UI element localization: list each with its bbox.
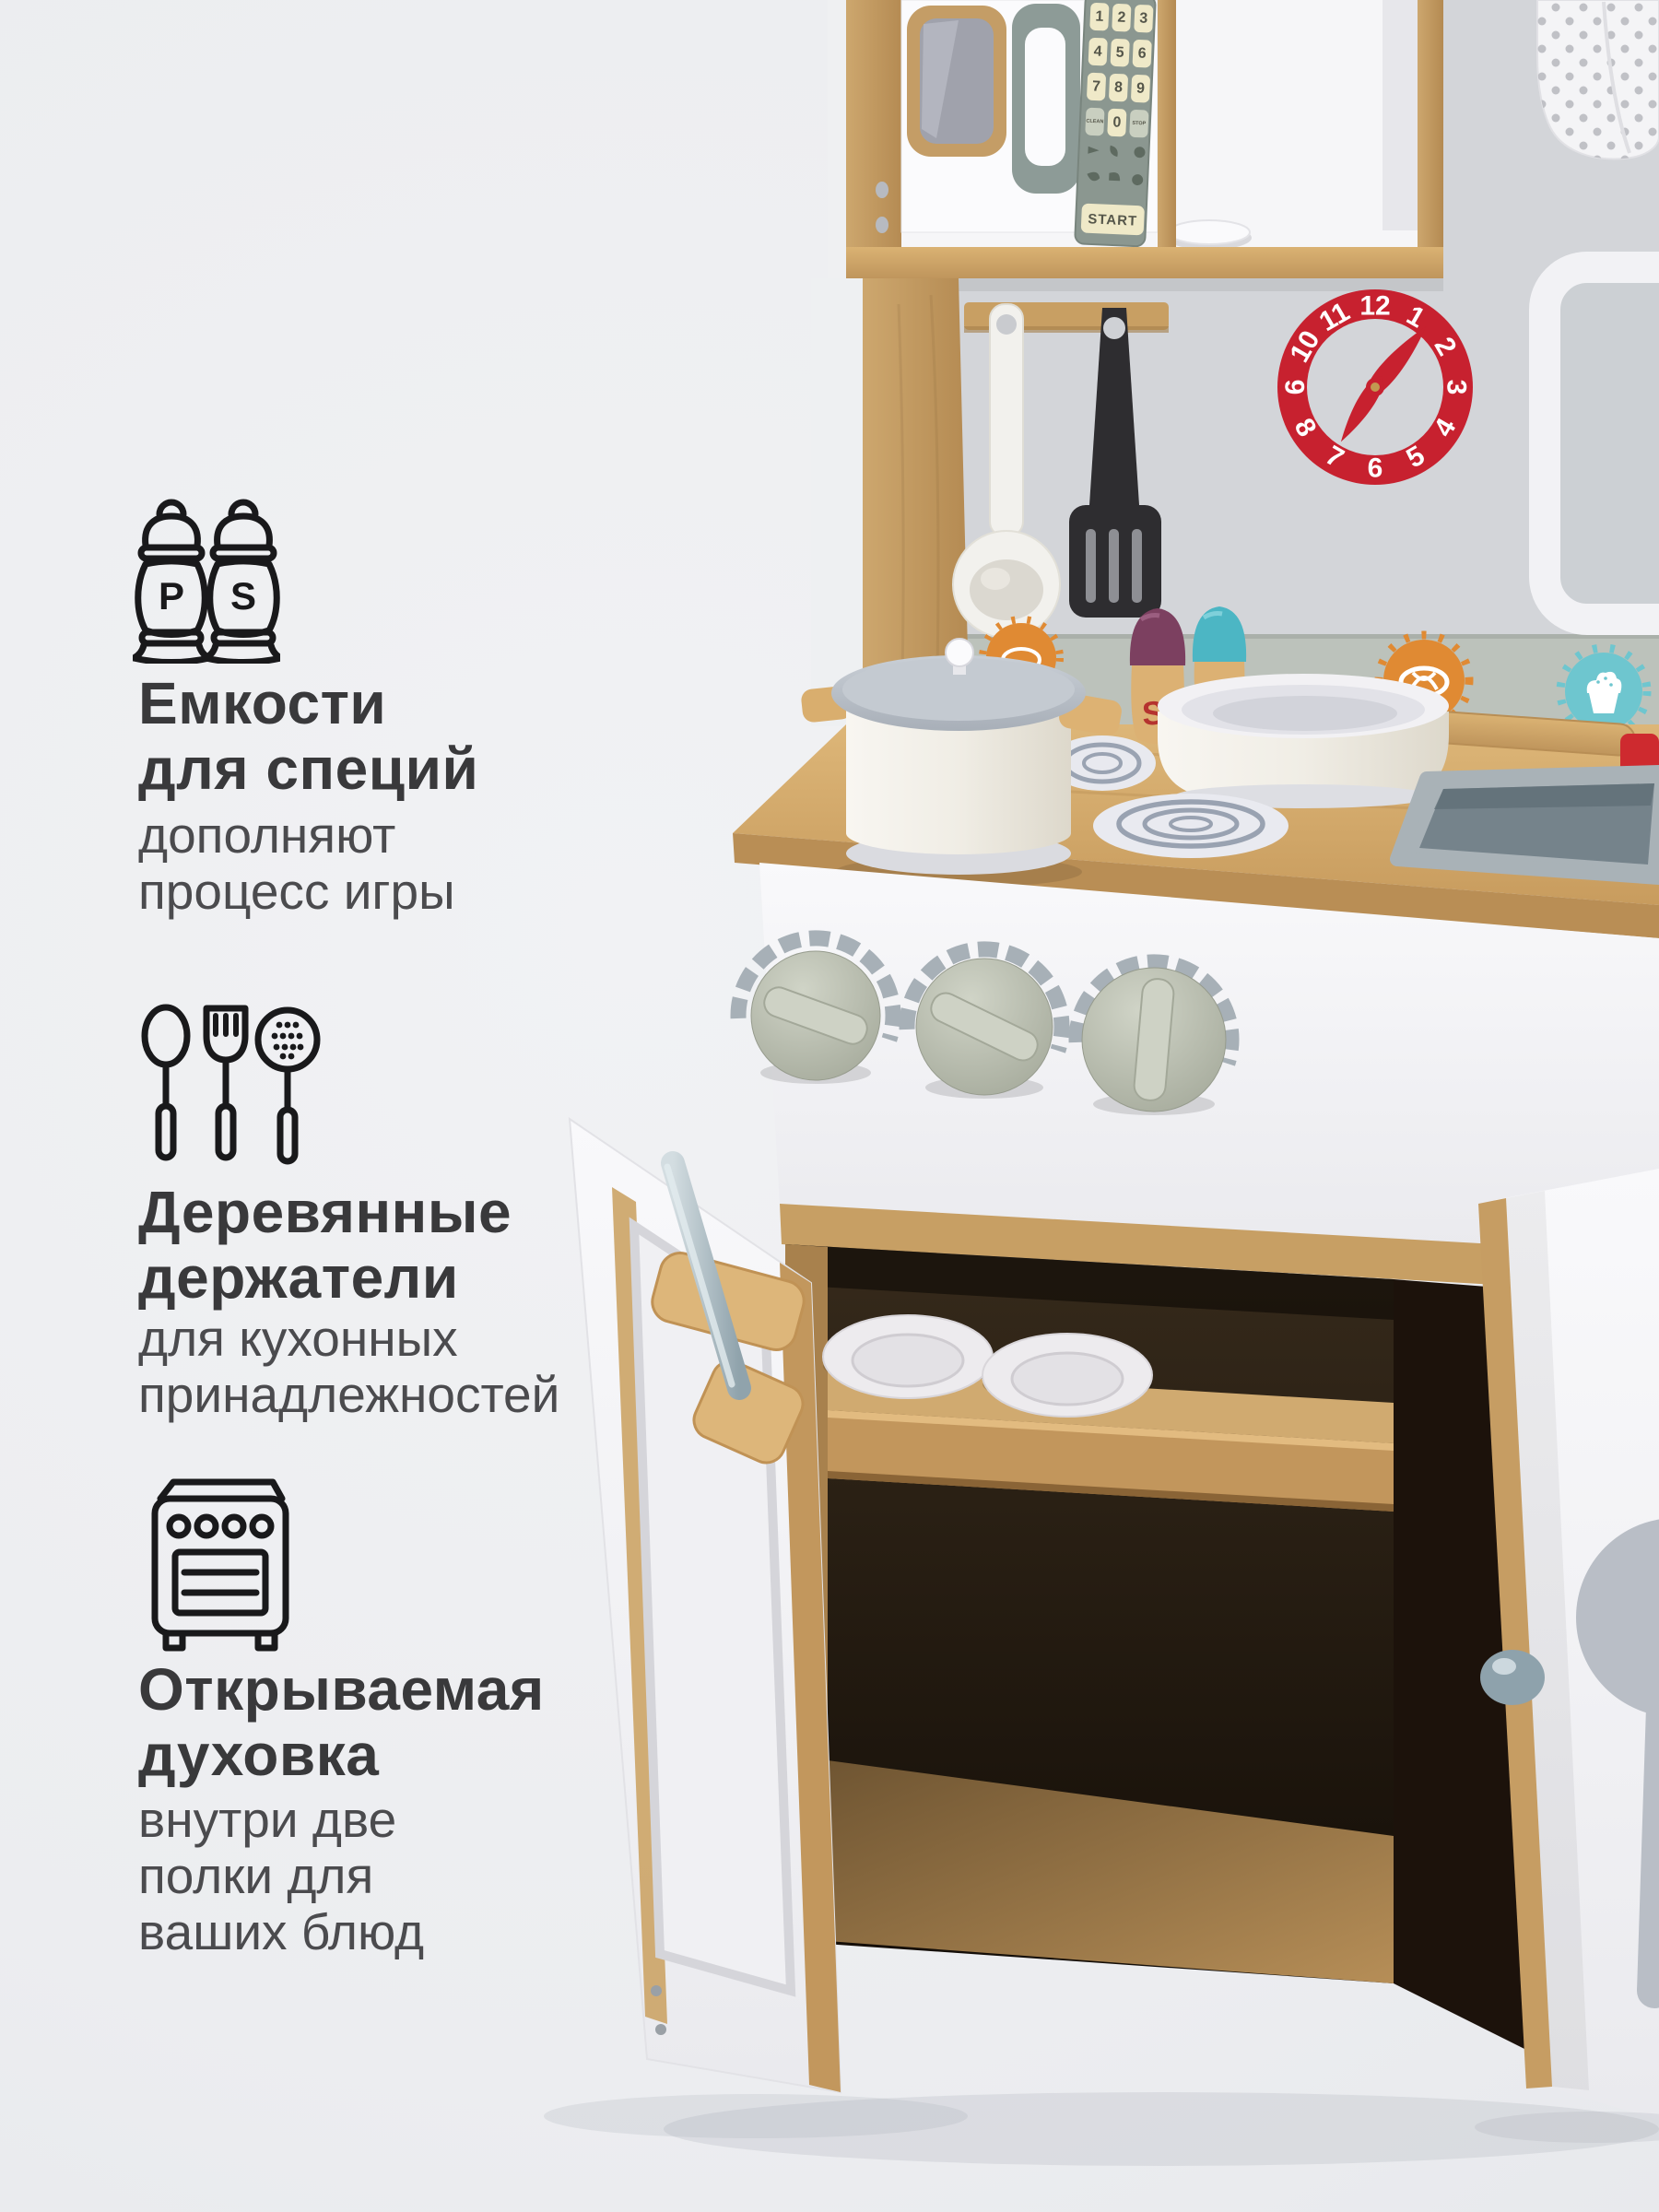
keypad-key: 4 xyxy=(1093,43,1102,59)
keypad-key: 3 xyxy=(1139,11,1148,27)
microwave-keypad: 1 2 3 4 5 6 7 8 9 CLEAN 0 STOP START xyxy=(1075,0,1156,247)
keypad-key: 2 xyxy=(1117,10,1126,26)
oven-plate xyxy=(823,1315,993,1398)
oven-cavity xyxy=(785,1244,1394,1983)
clock-number: 3 xyxy=(1441,380,1472,395)
keypad-key: 6 xyxy=(1137,46,1147,62)
clock-number: 9 xyxy=(1279,380,1310,395)
clock-number: 12 xyxy=(1359,291,1390,322)
microwave-hinge xyxy=(876,182,888,198)
toy-sink xyxy=(1397,772,1659,877)
keypad-key: 7 xyxy=(1092,78,1101,94)
clock-number: 6 xyxy=(1368,453,1383,484)
polka-dot-towel xyxy=(1537,0,1659,159)
keypad-key: 5 xyxy=(1115,44,1124,60)
shelf-plate xyxy=(1169,220,1250,244)
cabinet-bottom-board xyxy=(846,247,1443,278)
keypad-key: CLEAN xyxy=(1086,119,1103,125)
toy-microwave: 1 2 3 4 5 6 7 8 9 CLEAN 0 STOP START xyxy=(876,0,1158,247)
pot-lid-knob xyxy=(946,639,973,666)
microwave-start-key: START xyxy=(1088,211,1138,229)
keypad-key: STOP xyxy=(1132,121,1146,127)
burner-plate-front xyxy=(1093,794,1288,858)
toy-window-frame xyxy=(1545,267,1659,619)
toy-kitchen-photo: 1 2 3 4 5 6 7 8 9 CLEAN 0 STOP START xyxy=(0,0,1659,2212)
keypad-key: 9 xyxy=(1136,80,1146,96)
microwave-hinge xyxy=(876,217,888,233)
product-infographic: P S Емкости для специй дополняют процесс… xyxy=(0,0,1659,2212)
cabinet-side-wood xyxy=(846,0,903,278)
keypad-key: 1 xyxy=(1095,8,1104,24)
upper-cabinet: 1 2 3 4 5 6 7 8 9 CLEAN 0 STOP START xyxy=(828,0,1443,291)
keypad-key: 8 xyxy=(1114,79,1124,95)
door-knob xyxy=(1480,1650,1545,1705)
toy-clock: 12 1 2 3 4 5 6 7 8 9 10 11 xyxy=(1277,289,1473,485)
keypad-key: 0 xyxy=(1112,114,1122,130)
oven-plate xyxy=(982,1334,1152,1417)
